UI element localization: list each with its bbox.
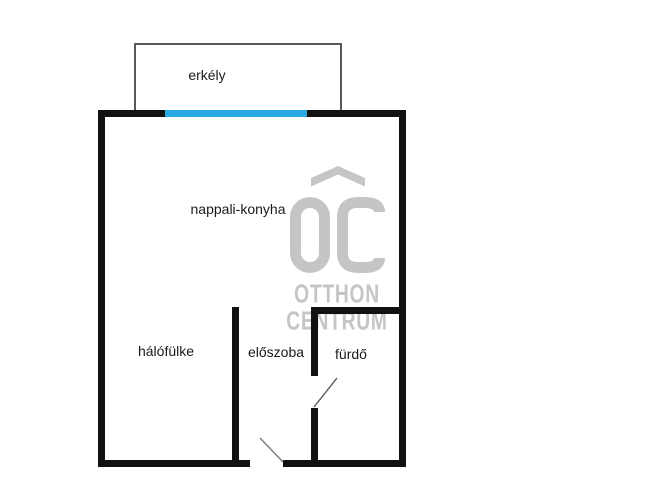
- bathroom-door-swing-line: [314, 378, 337, 407]
- room-label-hallway: előszoba: [248, 344, 304, 360]
- room-label-balcony: erkély: [188, 67, 225, 83]
- entry-door-swing-line: [260, 438, 283, 462]
- door-swings: [0, 0, 671, 500]
- balcony-window-marker: [165, 110, 307, 117]
- floorplan-canvas: OTTHON CENTRUM erkély nappali-konyha hál…: [0, 0, 671, 500]
- room-label-living-kitchen: nappali-konyha: [191, 201, 286, 217]
- room-label-sleeping-alcove: hálófülke: [138, 343, 194, 359]
- room-label-bathroom: fürdő: [335, 346, 367, 362]
